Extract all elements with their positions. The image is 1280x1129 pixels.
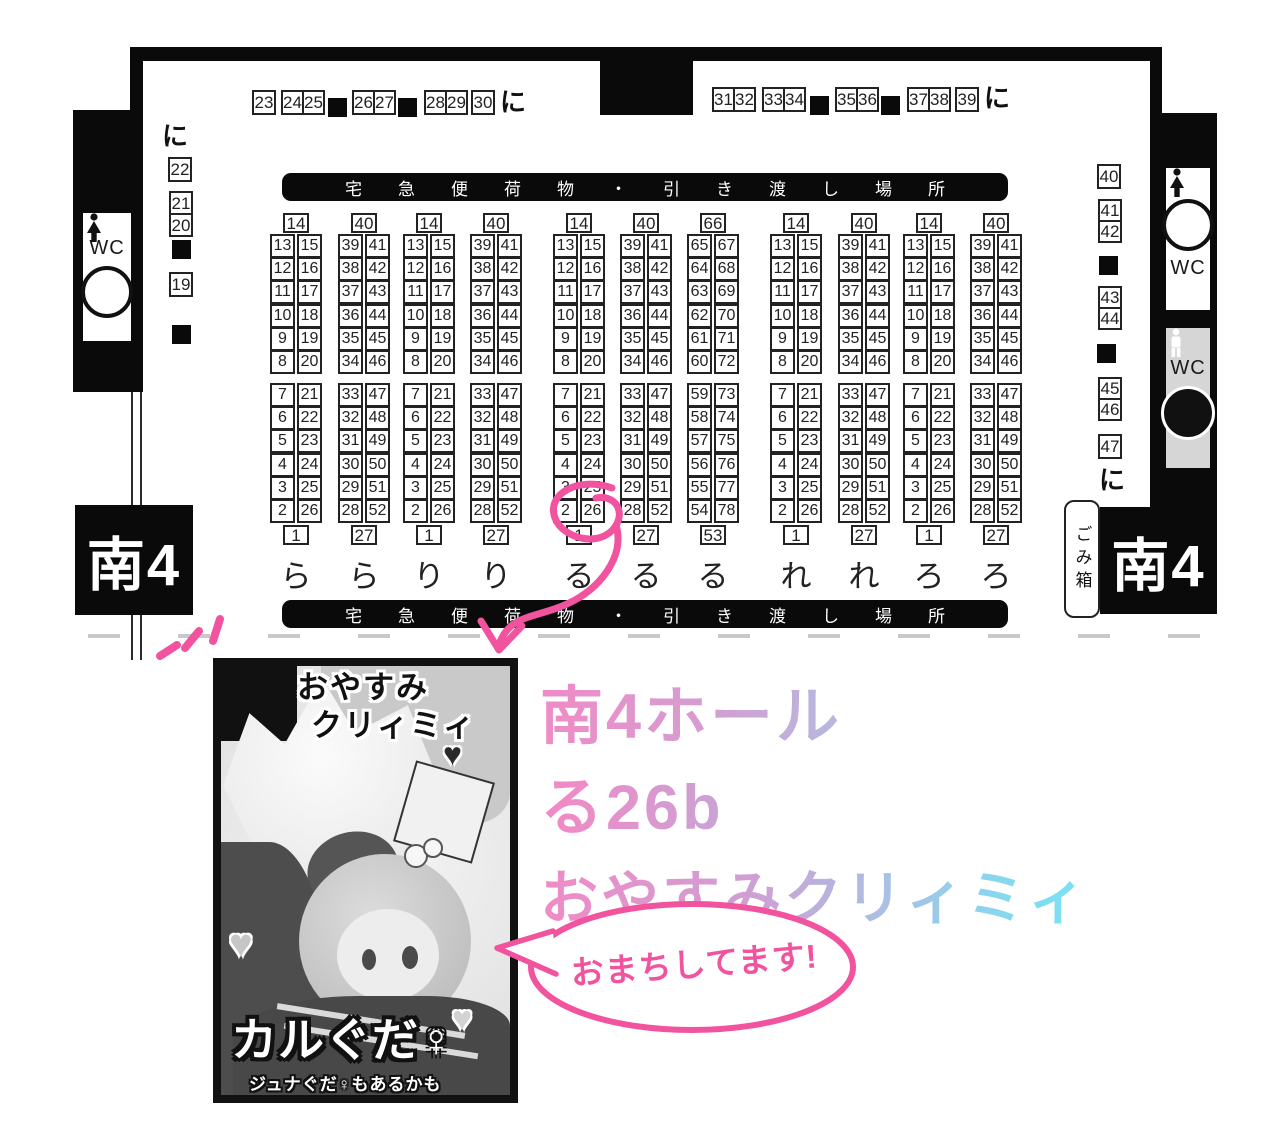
- booth-cell: 26: [797, 499, 822, 523]
- booth-cell: 16: [580, 257, 605, 281]
- booth-cell: 41: [497, 234, 522, 258]
- booth-cell: 9: [403, 327, 428, 351]
- booth-cell: 42: [647, 257, 672, 281]
- booth-cell: 28: [470, 499, 495, 523]
- entrance-label: に: [500, 82, 526, 119]
- seat-box: 28: [424, 90, 447, 115]
- booth-cell: 12: [403, 257, 428, 281]
- booth-cell: 2: [553, 499, 578, 523]
- hall-name-left: 南4: [75, 505, 193, 615]
- booth-cell: 15: [930, 234, 955, 258]
- booth-header: 40: [633, 213, 659, 233]
- booth-cell: 50: [997, 453, 1022, 477]
- booth-cell: 25: [797, 476, 822, 500]
- booth-cell: 43: [865, 280, 890, 304]
- booth-cell: 52: [497, 499, 522, 523]
- booth-cell: 69: [714, 280, 739, 304]
- booth-cell: 25: [297, 476, 322, 500]
- seat-box: 38: [928, 87, 951, 112]
- booth-cell: 18: [930, 304, 955, 328]
- booth-cell: 42: [865, 257, 890, 281]
- booth-footer: 27: [483, 525, 509, 545]
- booth-cell: 9: [553, 327, 578, 351]
- booth-cell: 25: [580, 476, 605, 500]
- booth-cell: 23: [430, 429, 455, 453]
- row-letter: り: [470, 551, 522, 596]
- booth-cell: 64: [687, 257, 712, 281]
- booth-cell: 4: [903, 453, 928, 477]
- booth-cell: 3: [903, 476, 928, 500]
- booth-cell: 31: [970, 429, 995, 453]
- seat-box: 37: [907, 87, 930, 112]
- booth-cell: 46: [997, 350, 1022, 374]
- booth-cell: 32: [470, 406, 495, 430]
- booth-cell: 51: [365, 476, 390, 500]
- booth-cell: 36: [470, 304, 495, 328]
- booth-cell: 8: [553, 350, 578, 374]
- booth-cell: 74: [714, 406, 739, 430]
- booth-cell: 34: [620, 350, 645, 374]
- booth-cell: 23: [580, 429, 605, 453]
- seat-box: 26: [352, 90, 375, 115]
- booth-cell: 38: [970, 257, 995, 281]
- booth-cell: 7: [553, 383, 578, 407]
- booth-cell: 68: [714, 257, 739, 281]
- booth-cell: 3: [270, 476, 295, 500]
- right-female-wc-label: WC: [1170, 257, 1205, 280]
- booth-cell: 18: [297, 304, 322, 328]
- female-icon: [81, 266, 133, 318]
- booth-cell: 16: [797, 257, 822, 281]
- booth-cell: 18: [797, 304, 822, 328]
- booth-cell: 58: [687, 406, 712, 430]
- seat-box: 44: [1098, 307, 1122, 330]
- booth-cell: 17: [430, 280, 455, 304]
- booth-cell: 11: [903, 280, 928, 304]
- hall-name-right-label: 南4: [1111, 519, 1205, 603]
- booth-cell: 26: [430, 499, 455, 523]
- booth-cell: 3: [403, 476, 428, 500]
- booth-cell: 56: [687, 453, 712, 477]
- seat-box: 39: [955, 87, 979, 112]
- booth-cell: 45: [365, 327, 390, 351]
- cover-note: ジュナぐだ♀もあるかも: [249, 1070, 442, 1095]
- booth-cell: 4: [770, 453, 795, 477]
- booth-cell: 45: [865, 327, 890, 351]
- seat-box: 42: [1098, 220, 1122, 243]
- cover-art-girl-eye-left: [362, 949, 376, 970]
- left-wc-label: WC: [89, 237, 124, 260]
- entrance-label: に: [162, 116, 188, 153]
- cover-heart-pendant: ♥: [452, 1002, 472, 1036]
- cover-art-girl-face: [337, 909, 439, 1001]
- booth-cell: 18: [580, 304, 605, 328]
- booth-cell: 7: [770, 383, 795, 407]
- delivery-banner-bottom-label: 宅急便荷物・引き渡し場所: [309, 602, 981, 627]
- wall-top-center-block: [600, 47, 693, 115]
- booth-cell: 26: [297, 499, 322, 523]
- hall-name-right: 南4: [1100, 507, 1217, 614]
- booth-cell: 19: [430, 327, 455, 351]
- booth-cell: 50: [647, 453, 672, 477]
- event-map-announcement: WC WC WC 南4 南4 ごみ箱 宅急便荷物・引き渡し場所 宅急便荷物・引き…: [0, 0, 1280, 1129]
- booth-cell: 5: [770, 429, 795, 453]
- booth-cell: 19: [580, 327, 605, 351]
- booth-cell: 22: [430, 406, 455, 430]
- booth-cell: 31: [470, 429, 495, 453]
- booth-cell: 11: [403, 280, 428, 304]
- booth-cell: 12: [270, 257, 295, 281]
- booth-cell: 10: [903, 304, 928, 328]
- pillar-block: [172, 240, 191, 259]
- booth-cell: 29: [970, 476, 995, 500]
- booth-cell: 71: [714, 327, 739, 351]
- booth-cell: 26: [930, 499, 955, 523]
- booth-cell: 35: [470, 327, 495, 351]
- booth-cell: 21: [930, 383, 955, 407]
- booth-cell: 75: [714, 429, 739, 453]
- booth-cell: 65: [687, 234, 712, 258]
- booth-cell: 62: [687, 304, 712, 328]
- booth-cell: 17: [580, 280, 605, 304]
- booth-footer: 53: [700, 525, 726, 545]
- booth-cell: 6: [770, 406, 795, 430]
- booth-cell: 23: [797, 429, 822, 453]
- row-letter: れ: [838, 551, 890, 596]
- booth-cell: 4: [553, 453, 578, 477]
- booth-cell: 5: [403, 429, 428, 453]
- booth-cell: 7: [903, 383, 928, 407]
- booth-cell: 49: [497, 429, 522, 453]
- booth-cell: 70: [714, 304, 739, 328]
- booth-cell: 30: [838, 453, 863, 477]
- booth-cell: 39: [838, 234, 863, 258]
- seat-box: 34: [783, 87, 806, 112]
- booth-cell: 38: [838, 257, 863, 281]
- seat-box: 40: [1097, 164, 1121, 189]
- booth-cell: 5: [553, 429, 578, 453]
- booth-cell: 48: [997, 406, 1022, 430]
- booth-cell: 45: [647, 327, 672, 351]
- seat-box: 20: [169, 213, 193, 237]
- booth-cell: 15: [430, 234, 455, 258]
- booth-footer: 1: [416, 525, 442, 545]
- booth-cell: 2: [270, 499, 295, 523]
- booth-cell: 50: [497, 453, 522, 477]
- row-letter: ら: [338, 551, 390, 596]
- booth-cell: 32: [970, 406, 995, 430]
- booth-cell: 21: [430, 383, 455, 407]
- booth-cell: 42: [365, 257, 390, 281]
- seat-box: 43: [1098, 286, 1122, 309]
- entrance-label: に: [1099, 460, 1125, 497]
- seat-box: 27: [373, 90, 396, 115]
- booth-cell: 48: [365, 406, 390, 430]
- row-letter: る: [620, 551, 672, 596]
- booth-cell: 2: [770, 499, 795, 523]
- booth-cell: 10: [770, 304, 795, 328]
- booth-cell: 24: [430, 453, 455, 477]
- booth-cell: 8: [770, 350, 795, 374]
- booth-cell: 10: [553, 304, 578, 328]
- booth-cell: 51: [865, 476, 890, 500]
- booth-cell: 47: [497, 383, 522, 407]
- booth-cell: 78: [714, 499, 739, 523]
- booth-cell: 46: [497, 350, 522, 374]
- booth-cell: 49: [865, 429, 890, 453]
- booth-cell: 34: [970, 350, 995, 374]
- seat-box: 31: [712, 87, 735, 112]
- booth-header: 14: [416, 213, 442, 233]
- booth-cell: 31: [620, 429, 645, 453]
- booth-cell: 11: [270, 280, 295, 304]
- booth-cell: 13: [270, 234, 295, 258]
- left-wc-room: WC: [83, 213, 131, 341]
- booth-cell: 3: [553, 476, 578, 500]
- booth-cell: 22: [797, 406, 822, 430]
- booth-cell: 10: [270, 304, 295, 328]
- booth-cell: 49: [647, 429, 672, 453]
- delivery-banner-top-label: 宅急便荷物・引き渡し場所: [309, 175, 981, 200]
- booth-cell: 32: [620, 406, 645, 430]
- booth-cell: 52: [365, 499, 390, 523]
- row-letter: れ: [770, 551, 822, 596]
- booth-cell: 2: [403, 499, 428, 523]
- booth-cell: 52: [997, 499, 1022, 523]
- booth-cell: 15: [797, 234, 822, 258]
- pillar-block: [172, 325, 191, 344]
- booth-cell: 4: [403, 453, 428, 477]
- booth-cell: 2: [903, 499, 928, 523]
- booth-cell: 59: [687, 383, 712, 407]
- seat-box: 45: [1098, 377, 1122, 400]
- booth-cell: 22: [580, 406, 605, 430]
- booth-cell: 34: [338, 350, 363, 374]
- booth-cell: 37: [838, 280, 863, 304]
- booth-cell: 20: [580, 350, 605, 374]
- booth-cell: 17: [797, 280, 822, 304]
- hall-bottom-dashed-line: [88, 634, 1230, 638]
- booth-footer: 1: [916, 525, 942, 545]
- cover-title-line2: クリィミィ: [311, 710, 476, 741]
- booth-cell: 39: [470, 234, 495, 258]
- booth-cell: 28: [620, 499, 645, 523]
- booth-cell: 8: [903, 350, 928, 374]
- booth-cell: 13: [403, 234, 428, 258]
- booth-cell: 6: [903, 406, 928, 430]
- booth-cell: 48: [865, 406, 890, 430]
- booth-cell: 30: [620, 453, 645, 477]
- emphasis-dash-1: [160, 645, 177, 656]
- booth-header: 14: [566, 213, 592, 233]
- trash-box-label: ごみ箱: [1070, 525, 1095, 594]
- seat-box: 23: [252, 90, 276, 115]
- booth-cell: 20: [297, 350, 322, 374]
- booth-cell: 37: [970, 280, 995, 304]
- booth-cell: 19: [930, 327, 955, 351]
- booth-cell: 22: [930, 406, 955, 430]
- booth-cell: 16: [930, 257, 955, 281]
- hall-name-left-label: 南4: [87, 518, 181, 602]
- booth-cell: 42: [497, 257, 522, 281]
- right-male-wc-room: WC: [1166, 328, 1210, 468]
- booth-cell: 45: [997, 327, 1022, 351]
- right-male-wc-label: WC: [1170, 357, 1205, 380]
- booth-cell: 33: [620, 383, 645, 407]
- row-letter: る: [553, 551, 605, 596]
- doujin-cover: ♥ ♥ ♥ おやすみ クリィミィ カルぐだ♀ ジュナぐだ♀もあるかも: [213, 658, 518, 1103]
- booth-cell: 24: [797, 453, 822, 477]
- row-letter: る: [687, 551, 739, 596]
- booth-cell: 20: [430, 350, 455, 374]
- right-female-wc-room: WC: [1166, 168, 1210, 310]
- booth-cell: 47: [997, 383, 1022, 407]
- booth-header: 14: [283, 213, 309, 233]
- booth-cell: 9: [770, 327, 795, 351]
- booth-cell: 52: [865, 499, 890, 523]
- booth-cell: 34: [838, 350, 863, 374]
- delivery-banner-bottom: 宅急便荷物・引き渡し場所: [282, 600, 1008, 628]
- row-letter: り: [403, 551, 455, 596]
- booth-cell: 47: [865, 383, 890, 407]
- booth-cell: 61: [687, 327, 712, 351]
- booth-header: 40: [351, 213, 377, 233]
- booth-cell: 7: [270, 383, 295, 407]
- booth-cell: 5: [270, 429, 295, 453]
- booth-cell: 43: [497, 280, 522, 304]
- booth-cell: 16: [430, 257, 455, 281]
- booth-cell: 39: [970, 234, 995, 258]
- row-letter: ろ: [970, 551, 1022, 596]
- cover-heart-left: ♥: [229, 924, 253, 964]
- booth-cell: 4: [270, 453, 295, 477]
- booth-cell: 9: [903, 327, 928, 351]
- booth-footer: 27: [983, 525, 1009, 545]
- booth-cell: 50: [365, 453, 390, 477]
- delivery-banner-top: 宅急便荷物・引き渡し場所: [282, 173, 1008, 201]
- booth-header: 40: [983, 213, 1009, 233]
- booth-cell: 24: [580, 453, 605, 477]
- booth-cell: 31: [838, 429, 863, 453]
- seat-box: 19: [169, 272, 193, 297]
- booth-cell: 35: [338, 327, 363, 351]
- cover-art-girl-eye-right: [402, 946, 418, 969]
- booth-cell: 10: [403, 304, 428, 328]
- booth-cell: 30: [970, 453, 995, 477]
- booth-cell: 29: [838, 476, 863, 500]
- booth-cell: 76: [714, 453, 739, 477]
- booth-cell: 9: [270, 327, 295, 351]
- pillar-block: [328, 98, 347, 117]
- booth-cell: 37: [620, 280, 645, 304]
- booth-cell: 49: [997, 429, 1022, 453]
- booth-cell: 33: [970, 383, 995, 407]
- booth-cell: 35: [838, 327, 863, 351]
- booth-cell: 29: [338, 476, 363, 500]
- booth-cell: 48: [647, 406, 672, 430]
- booth-cell: 47: [647, 383, 672, 407]
- booth-cell: 72: [714, 350, 739, 374]
- booth-cell: 12: [553, 257, 578, 281]
- booth-cell: 15: [580, 234, 605, 258]
- male-icon: [1161, 386, 1215, 440]
- seat-box: 25: [302, 90, 325, 115]
- booth-cell: 3: [770, 476, 795, 500]
- booth-cell: 55: [687, 476, 712, 500]
- booth-cell: 6: [403, 406, 428, 430]
- booth-cell: 20: [930, 350, 955, 374]
- booth-footer: 1: [566, 525, 592, 545]
- booth-cell: 52: [647, 499, 672, 523]
- booth-footer: 27: [351, 525, 377, 545]
- booth-cell: 19: [797, 327, 822, 351]
- booth-cell: 37: [338, 280, 363, 304]
- booth-cell: 33: [470, 383, 495, 407]
- booth-cell: 36: [338, 304, 363, 328]
- booth-cell: 12: [770, 257, 795, 281]
- booth-cell: 46: [865, 350, 890, 374]
- seat-box: 22: [168, 157, 192, 182]
- booth-cell: 20: [797, 350, 822, 374]
- seat-box: 46: [1098, 398, 1122, 421]
- booth-cell: 30: [470, 453, 495, 477]
- booth-cell: 44: [365, 304, 390, 328]
- booth-cell: 43: [647, 280, 672, 304]
- booth-cell: 13: [903, 234, 928, 258]
- booth-cell: 13: [770, 234, 795, 258]
- seat-box: 30: [471, 90, 495, 115]
- female-icon: [1162, 199, 1214, 251]
- booth-cell: 17: [930, 280, 955, 304]
- booth-cell: 50: [865, 453, 890, 477]
- entrance-label: に: [984, 78, 1010, 115]
- booth-cell: 8: [270, 350, 295, 374]
- booth-cell: 46: [647, 350, 672, 374]
- booth-header: 40: [851, 213, 877, 233]
- wall-right: [1150, 47, 1162, 507]
- booth-cell: 28: [970, 499, 995, 523]
- booth-footer: 27: [851, 525, 877, 545]
- booth-footer: 27: [633, 525, 659, 545]
- pillar-block: [881, 96, 900, 115]
- booth-cell: 7: [403, 383, 428, 407]
- booth-cell: 36: [970, 304, 995, 328]
- booth-cell: 24: [297, 453, 322, 477]
- seat-box: 21: [169, 191, 193, 215]
- booth-cell: 36: [620, 304, 645, 328]
- booth-cell: 49: [365, 429, 390, 453]
- booth-cell: 28: [338, 499, 363, 523]
- booth-cell: 38: [620, 257, 645, 281]
- booth-header: 66: [700, 213, 726, 233]
- seat-box: 29: [445, 90, 468, 115]
- booth-cell: 48: [497, 406, 522, 430]
- booth-cell: 44: [865, 304, 890, 328]
- booth-cell: 29: [470, 476, 495, 500]
- seat-box: 24: [281, 90, 304, 115]
- booth-cell: 44: [997, 304, 1022, 328]
- booth-cell: 6: [553, 406, 578, 430]
- pillar-block: [1099, 256, 1118, 275]
- booth-header: 14: [916, 213, 942, 233]
- booth-cell: 26: [580, 499, 605, 523]
- booth-cell: 41: [365, 234, 390, 258]
- cover-circle-name: カルぐだ♀: [231, 1004, 455, 1070]
- booth-cell: 51: [497, 476, 522, 500]
- booth-cell: 21: [580, 383, 605, 407]
- cover-title-line1: おやすみ: [297, 672, 429, 703]
- booth-cell: 11: [770, 280, 795, 304]
